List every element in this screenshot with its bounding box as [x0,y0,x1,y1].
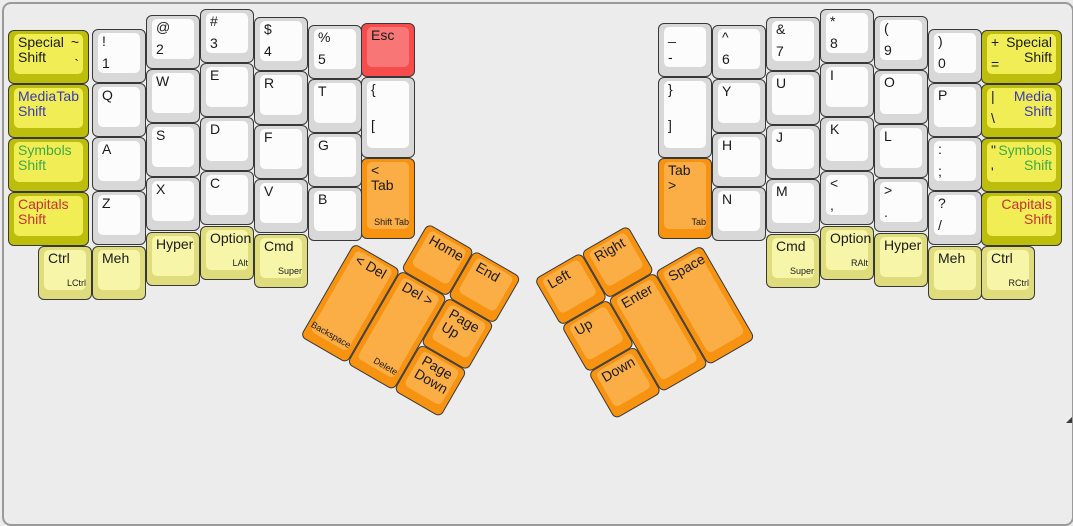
key-top-face: *8 [826,13,868,53]
key-top-face: Hyper [152,236,194,276]
key-letter-y[interactable]: Y [712,79,766,133]
key-base-legend: 5 [318,52,326,67]
key-esc[interactable]: Esc [361,23,415,77]
key-top-face: Media ShiftTab [14,88,83,128]
key-base-legend: 4 [264,44,272,59]
key-label: J [776,130,810,145]
key-label: A [102,142,136,157]
key-label: Symbols Shift [991,143,1052,173]
key-digit-3[interactable]: #3 [200,9,254,63]
key-top-face: D [206,121,248,161]
key-top-face: ?/ [934,195,976,235]
key-letter-f[interactable]: F [254,125,308,179]
key-base-legend: 0 [938,56,946,71]
key-letter-b[interactable]: B [308,187,362,241]
key-capitals-shift-left[interactable]: Capitals Shift [8,192,89,246]
key-label: V [264,184,298,199]
key-base-legend: = [991,57,999,72]
key-capitals-shift-right[interactable]: Capitals Shift [981,192,1062,246]
key-symbols-shift-right[interactable]: Symbols Shift"' [981,138,1062,192]
key-top-face: X [152,181,194,221]
key-label: Cmd [776,239,810,254]
key-top-face: Symbols Shift"' [987,142,1056,182]
resize-corner-mark [1066,417,1072,423]
key-base-legend: ' [991,165,994,180]
keyboard-layout-board: Special Shift~`Media ShiftTabSymbols Shi… [0,0,1073,424]
key-top-face: G [314,137,356,177]
key-letter-d[interactable]: D [200,117,254,171]
key-base-legend: 1 [102,56,110,71]
key-digit-9[interactable]: (9 [874,16,928,70]
key-letter-a[interactable]: A [92,137,146,191]
key-top-face: )0 [934,33,976,73]
key-cmd-left[interactable]: CmdSuper [254,234,308,288]
key-letter-l[interactable]: L [874,124,928,178]
key-label: T [318,84,352,99]
key-tab[interactable]: Tab >Tab [658,158,712,239]
key-label: H [722,138,756,153]
key-letter-h[interactable]: H [712,133,766,187]
key-sub-label: LCtrl [67,278,86,288]
key-shift-legend: _ [668,28,676,43]
key-shift-legend: > [884,183,892,198]
key-base-legend: 6 [722,52,730,67]
key-top-face: M [772,183,814,223]
key-top-face: L [880,128,922,168]
key-label: End [473,260,510,290]
key-label: Ctrl [991,251,1025,266]
key-base-legend: 9 [884,43,892,58]
key-media-shift-left[interactable]: Media ShiftTab [8,84,89,138]
key-label: U [776,76,810,91]
key-shift-legend: $ [264,22,272,37]
key-label: I [830,68,864,83]
key-base-legend: . [884,205,888,220]
key-meh-right[interactable]: Meh [928,246,982,300]
key-shift-legend: & [776,22,785,37]
key-label: E [210,68,244,83]
key-top-face: I [826,67,868,107]
key-base-legend: , [830,198,834,213]
key-label: R [264,76,298,91]
key-top-face: &7 [772,21,814,61]
key-label: Page Down [412,353,456,396]
key-bracket-left[interactable]: {[ [361,77,415,158]
key-top-face: Meh [98,250,140,290]
key-shift-tab[interactable]: < TabShift Tab [361,158,415,239]
key-top-face: ^6 [718,29,760,69]
key-top-face: R [260,75,302,115]
key-label: C [210,176,244,191]
key-top-face: Capitals Shift [987,196,1056,236]
key-top-face: N [718,191,760,231]
key-bracket-right[interactable]: }] [658,77,712,158]
key-label: Tab > [668,163,702,193]
key-top-face: }] [664,81,706,148]
key-shift-legend: # [210,14,218,29]
key-label: Home [426,233,463,263]
key-minus[interactable]: _- [658,23,712,77]
key-top-face: Q [98,87,140,127]
key-shift-legend: : [938,142,942,157]
key-shift-legend: ( [884,21,889,36]
key-label: O [884,75,918,90]
key-label: F [264,130,298,145]
key-top-face: %5 [314,29,356,69]
key-top-face: C [206,175,248,215]
key-label: Hyper [884,238,918,253]
key-symbols-shift-left[interactable]: Symbols Shift [8,138,89,192]
key-top-face: Special Shift+= [987,34,1056,74]
key-top-face: #3 [206,13,248,53]
key-digit-2[interactable]: @2 [146,15,200,69]
key-top-face: H [718,137,760,177]
key-letter-z[interactable]: Z [92,191,146,245]
key-label: Cmd [264,239,298,254]
key-label: Option [210,231,244,246]
key-label: Q [102,88,136,103]
key-label: Left [545,262,582,292]
key-top-face: Capitals Shift [14,196,83,236]
key-label: Z [102,196,136,211]
key-label: X [156,182,190,197]
key-digit-6[interactable]: ^6 [712,25,766,79]
key-label: Ctrl [48,251,82,266]
key-sub-label: Tab [691,217,706,227]
key-base-legend: ] [668,118,672,133]
key-shift-legend: < [830,176,838,191]
key-digit-0[interactable]: )0 [928,29,982,83]
key-shift-legend: } [668,82,673,97]
key-sub-label: Shift Tab [374,217,409,227]
key-label: M [776,184,810,199]
key-shift-legend: Tab [56,89,79,104]
key-letter-r[interactable]: R [254,71,308,125]
key-ctrl-right[interactable]: CtrlRCtrl [981,246,1035,300]
key-label: Capitals Shift [991,197,1052,227]
key-label: D [210,122,244,137]
key-ctrl-left[interactable]: CtrlLCtrl [38,246,92,300]
key-letter-u[interactable]: U [766,71,820,125]
key-letter-w[interactable]: W [146,69,200,123]
key-cmd-right[interactable]: CmdSuper [766,234,820,288]
key-sub-label: Super [790,266,814,276]
key-label: Capitals Shift [18,197,79,227]
key-option-left[interactable]: OptionLAlt [200,226,254,280]
key-base-legend: \ [991,111,995,126]
key-top-face: :; [934,141,976,181]
key-label: Right [592,235,629,265]
key-period[interactable]: >. [874,178,928,232]
key-label: L [884,129,918,144]
key-meh-left[interactable]: Meh [92,246,146,300]
key-top-face: End [458,257,514,313]
key-sub-label: RAlt [851,258,868,268]
key-top-face: T [314,83,356,123]
key-label: Hyper [156,237,190,252]
key-label: Option [830,231,864,246]
key-semicolon[interactable]: :; [928,137,982,191]
key-shift-legend: ) [938,34,943,49]
key-top-face: P [934,87,976,127]
key-label: K [830,122,864,137]
key-top-face: K [826,121,868,161]
key-base-legend: 7 [776,44,784,59]
key-base-legend: 3 [210,36,218,51]
key-base-legend: / [938,218,942,233]
key-media-shift-right[interactable]: Media Shift|\ [981,84,1062,138]
key-base-legend: 2 [156,42,164,57]
key-letter-x[interactable]: X [146,177,200,231]
key-digit-5[interactable]: %5 [308,25,362,79]
key-base-legend: ` [74,57,79,72]
key-top-face: J [772,129,814,169]
key-shift-legend: " [991,143,996,158]
key-label: Meh [102,251,136,266]
key-top-face: (9 [880,20,922,60]
key-top-face: W [152,73,194,113]
key-letter-n[interactable]: N [712,187,766,241]
key-letter-v[interactable]: V [254,179,308,233]
key-base-legend: [ [371,118,375,133]
key-letter-q[interactable]: Q [92,83,146,137]
key-label: N [722,192,756,207]
key-letter-o[interactable]: O [874,70,928,124]
key-letter-e[interactable]: E [200,63,254,117]
key-letter-c[interactable]: C [200,171,254,225]
key-shift-legend: ^ [722,30,729,45]
key-shift-legend: % [318,30,330,45]
key-shift-legend: @ [156,20,170,35]
key-label: B [318,192,352,207]
key-label: Y [722,84,756,99]
key-label: < Tab [371,163,405,193]
key-letter-i[interactable]: I [820,63,874,117]
key-sub-label: LAlt [232,258,248,268]
key-label: Meh [938,251,972,266]
key-special-shift-left[interactable]: Special Shift~` [8,30,89,84]
key-top-face: Esc [367,27,409,67]
key-digit-4[interactable]: $4 [254,17,308,71]
key-top-face: {[ [367,81,409,148]
key-digit-1[interactable]: !1 [92,29,146,83]
key-top-face: >. [880,182,922,222]
key-top-face: $4 [260,21,302,61]
key-label: G [318,138,352,153]
key-top-face: Right [588,232,644,288]
key-top-face: Media Shift|\ [987,88,1056,128]
key-top-face: !1 [98,33,140,73]
key-sub-label: Super [278,266,302,276]
key-base-legend: - [668,50,673,65]
key-letter-t[interactable]: T [308,79,362,133]
key-letter-m[interactable]: M [766,179,820,233]
key-label: Space [666,254,703,284]
key-top-face: _- [664,27,706,67]
key-label: < Del [353,252,390,282]
key-top-face: Meh [934,250,976,290]
key-letter-j[interactable]: J [766,125,820,179]
key-letter-p[interactable]: P [928,83,982,137]
key-shift-legend: * [830,14,835,29]
key-option-right[interactable]: OptionRAlt [820,226,874,280]
key-top-face: Special Shift~` [14,34,83,74]
key-base-legend: 8 [830,36,838,51]
key-label: Esc [371,28,405,43]
key-hyper-left[interactable]: Hyper [146,232,200,286]
key-top-face: O [880,74,922,114]
key-top-face: <, [826,175,868,215]
key-label: Symbols Shift [18,143,79,173]
key-letter-k[interactable]: K [820,117,874,171]
key-shift-legend: + [991,35,999,50]
key-label: Special Shift [991,35,1052,65]
key-label: Page Up [439,306,483,349]
key-base-legend: ; [938,164,942,179]
key-label: P [938,88,972,103]
key-letter-g[interactable]: G [308,133,362,187]
key-top-face: Y [718,83,760,123]
key-digit-7[interactable]: &7 [766,17,820,71]
key-sub-label: RCtrl [1009,278,1030,288]
key-label: S [156,128,190,143]
key-top-face: Hyper [880,237,922,277]
key-letter-s[interactable]: S [146,123,200,177]
key-label: Media Shift [991,89,1052,119]
key-top-face: S [152,127,194,167]
key-shift-legend: ? [938,196,946,211]
key-top-face: F [260,129,302,169]
key-shift-legend: ! [102,34,106,49]
key-comma[interactable]: <, [820,171,874,225]
key-hyper-right[interactable]: Hyper [874,233,928,287]
key-shift-legend: | [991,89,995,104]
key-special-shift-right[interactable]: Special Shift+= [981,30,1062,84]
key-top-face: Symbols Shift [14,142,83,182]
key-top-face: @2 [152,19,194,59]
key-digit-8[interactable]: *8 [820,9,874,63]
key-top-face: Z [98,195,140,235]
key-top-face: E [206,67,248,107]
key-slash[interactable]: ?/ [928,191,982,245]
key-top-face: U [772,75,814,115]
key-top-face: B [314,191,356,231]
key-top-face: A [98,141,140,181]
key-label: W [156,74,190,89]
key-top-face: V [260,183,302,223]
key-shift-legend: ~ [71,35,79,50]
key-shift-legend: { [371,82,376,97]
